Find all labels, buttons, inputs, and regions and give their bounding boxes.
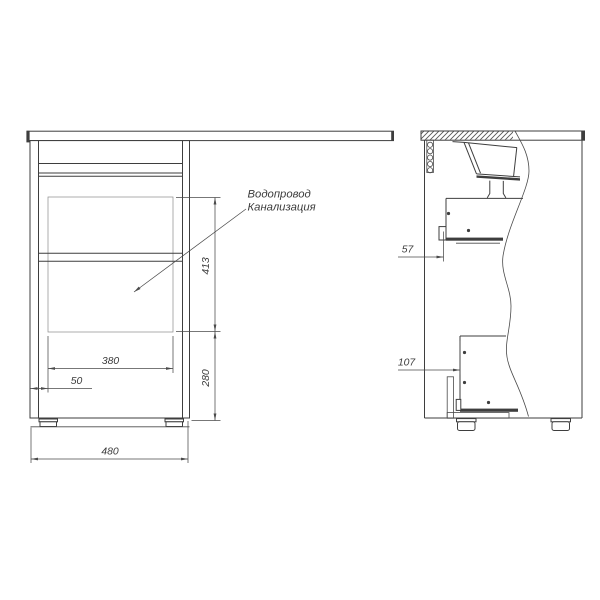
front-foot-right (165, 419, 184, 427)
lower-box-bottom-band (460, 409, 518, 412)
drain-pipe (487, 181, 506, 198)
screw-dot (467, 229, 470, 232)
dim-upper-offset: 57 (398, 232, 444, 262)
cabinet-body-front (30, 141, 190, 418)
countertop-section-hatch (422, 131, 514, 139)
countertop-left-cap (26, 131, 29, 143)
side-foot-left (457, 419, 477, 431)
dim-label-107: 107 (398, 358, 417, 369)
dim-overall-width: 480 (31, 421, 188, 463)
bottom-panel-section (447, 413, 509, 419)
front-foot-left (39, 419, 58, 427)
dim-label-413: 413 (201, 257, 212, 275)
screw-dot (463, 381, 466, 384)
countertop-right-cap (391, 131, 393, 140)
break-line (503, 131, 529, 417)
dim-lower-offset: 107 (398, 341, 460, 375)
dim-label-380: 380 (102, 356, 120, 367)
screw-dot (463, 351, 466, 354)
side-view: 57 107 (398, 131, 585, 431)
dim-label-57: 57 (402, 245, 415, 256)
technical-drawing-page: 413 280 380 50 480 (0, 0, 600, 600)
back-panel-section (447, 377, 453, 418)
vanity-cabinet-drawing: 413 280 380 50 480 (0, 0, 600, 600)
upper-mounting-tab (439, 227, 446, 240)
back-rail-section (427, 140, 434, 173)
annotation-line2: Канализация (248, 202, 316, 214)
annotation-line1: Водопровод (248, 189, 311, 201)
dim-label-50: 50 (71, 376, 83, 387)
upper-bracket-box (439, 198, 523, 243)
dim-label-280: 280 (201, 369, 212, 388)
dim-label-480: 480 (101, 447, 119, 458)
lower-mounting-tab (456, 399, 461, 410)
lower-bracket-box (456, 336, 518, 412)
screw-dot (487, 401, 490, 404)
front-view: 413 280 380 50 480 (26, 131, 393, 463)
side-foot-right (551, 419, 571, 431)
upper-box-bottom-band (446, 238, 503, 241)
sink-bowl-section (453, 142, 521, 181)
countertop-side-cap (581, 131, 584, 140)
countertop-side-section (421, 131, 585, 140)
screw-dot (447, 212, 450, 215)
